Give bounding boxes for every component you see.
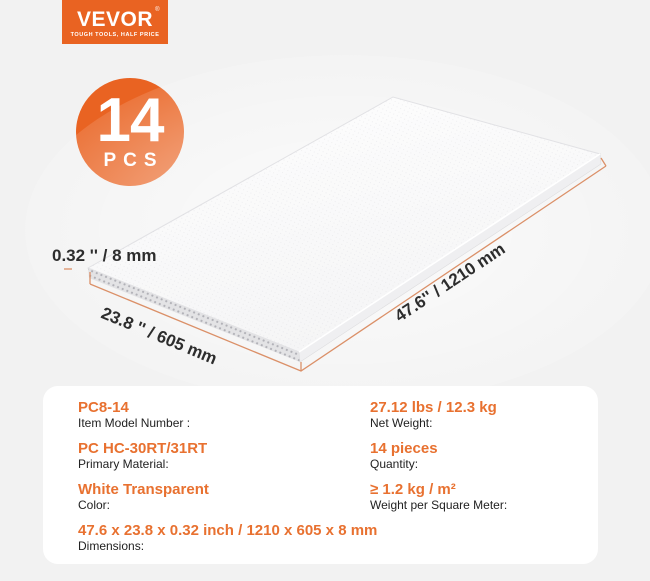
spec-label-model: Item Model Number : (78, 416, 377, 431)
spec-label-quantity: Quantity: (370, 457, 507, 472)
spec-label-dimensions: Dimensions: (78, 539, 377, 554)
spec-value-model: PC8-14 (78, 399, 377, 416)
spec-label-color: Color: (78, 498, 377, 513)
spec-label-material: Primary Material: (78, 457, 377, 472)
spec-column-left: PC8-14 Item Model Number : PC HC-30RT/31… (78, 399, 377, 563)
spec-row-dimensions: 47.6 x 23.8 x 0.32 inch / 1210 x 605 x 8… (78, 522, 377, 554)
spec-row-material: PC HC-30RT/31RT Primary Material: (78, 440, 377, 472)
spec-row-weight-per-sqm: ≥ 1.2 kg / m² Weight per Square Meter: (370, 481, 507, 513)
spec-value-weight-per-sqm: ≥ 1.2 kg / m² (370, 481, 507, 498)
spec-value-color: White Transparent (78, 481, 377, 498)
spec-label-net-weight: Net Weight: (370, 416, 507, 431)
product-infographic-page: VEVOR® TOUGH TOOLS, HALF PRICE 14 PCS (0, 0, 650, 581)
thickness-dimension-label: 0.32 '' / 8 mm (52, 246, 156, 265)
spec-value-quantity: 14 pieces (370, 440, 507, 457)
spec-label-weight-per-sqm: Weight per Square Meter: (370, 498, 507, 513)
spec-row-model: PC8-14 Item Model Number : (78, 399, 377, 431)
spec-row-net-weight: 27.12 lbs / 12.3 kg Net Weight: (370, 399, 507, 431)
spec-value-dimensions: 47.6 x 23.8 x 0.32 inch / 1210 x 605 x 8… (78, 522, 377, 539)
spec-row-quantity: 14 pieces Quantity: (370, 440, 507, 472)
spec-value-net-weight: 27.12 lbs / 12.3 kg (370, 399, 507, 416)
spec-value-material: PC HC-30RT/31RT (78, 440, 377, 457)
spec-column-right: 27.12 lbs / 12.3 kg Net Weight: 14 piece… (370, 399, 507, 522)
spec-card: PC8-14 Item Model Number : PC HC-30RT/31… (43, 386, 598, 564)
spec-row-color: White Transparent Color: (78, 481, 377, 513)
